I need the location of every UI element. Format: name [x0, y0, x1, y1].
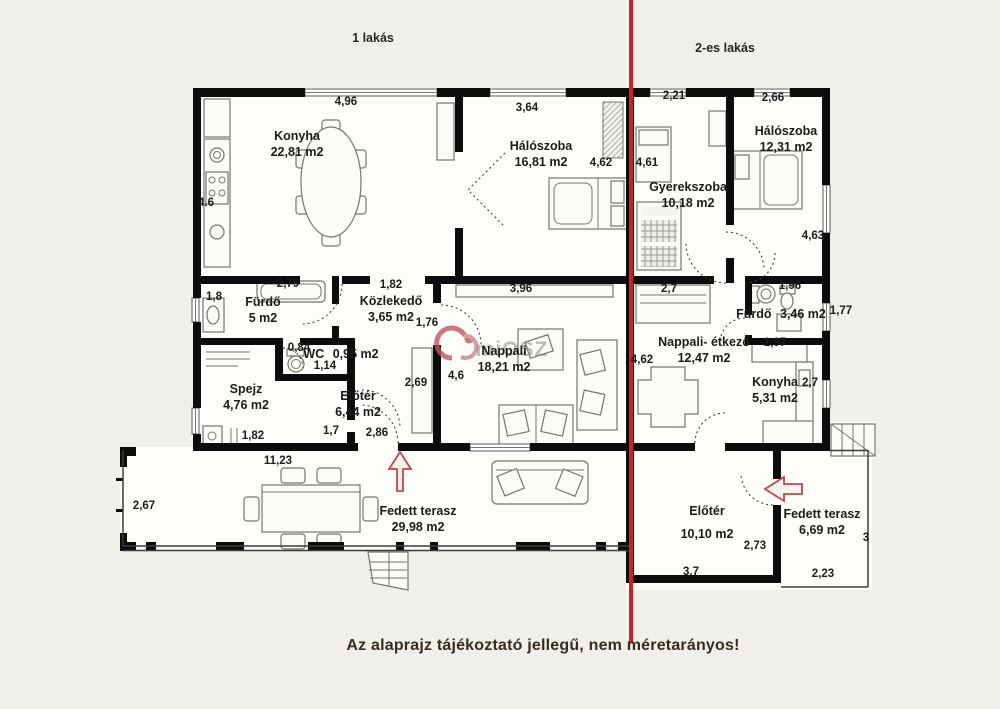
- dimension-label: 4,62: [631, 354, 653, 366]
- disclaimer-text: Az alaprajz tájékoztató jellegű, nem mér…: [346, 637, 739, 655]
- dimension-label: 4.6: [198, 197, 214, 209]
- dimension-label: 3,7: [683, 566, 699, 578]
- room-label-haloszoba-2: Hálószoba 12,31 m2: [755, 123, 818, 156]
- room-label-kozlekedo: Közlekedő 3,65 m2: [360, 293, 423, 326]
- dimension-label: 2,86: [366, 427, 388, 439]
- terrace1-steps: [368, 552, 408, 590]
- apartment-1-title: 1 lakás: [352, 31, 394, 45]
- room-label-nappali-1: Nappali 18,21 m2: [478, 343, 531, 376]
- dimension-label: 3,64: [516, 102, 538, 114]
- dimension-label: 1,82: [242, 430, 264, 442]
- room-label-haloszoba-1: Hálószoba 16,81 m2: [510, 138, 573, 171]
- room-label-gyerekszoba: Gyerekszoba 10,18 m2: [649, 179, 727, 212]
- apartment-divider-line: [629, 0, 633, 643]
- floor-plan-page: 1 lakás 2-es lakás miOSZ Konyha 22,81 m2…: [0, 0, 1000, 709]
- dimension-label: 1,14: [314, 360, 336, 372]
- dimension-label: 1,8: [206, 291, 222, 303]
- room-label-spejz: Spejz 4,76 m2: [223, 381, 269, 414]
- dimension-label: 1,76: [416, 317, 438, 329]
- dimension-label: 3,96: [510, 283, 532, 295]
- room-label-konyha-1: Konyha 22,81 m2: [271, 128, 324, 161]
- dimension-label: 4,96: [335, 96, 357, 108]
- room-label-terasz-1: Fedett terasz 29,98 m2: [379, 503, 456, 536]
- apartment-2-title: 2-es lakás: [695, 41, 755, 55]
- dimension-label: 2,21: [663, 90, 685, 102]
- dimension-label: 1,97: [764, 337, 786, 349]
- dimension-label: 4,61: [636, 157, 658, 169]
- dimension-label: 1,7: [323, 425, 339, 437]
- kitchen1-counter: [204, 99, 230, 267]
- dimension-label: 0,84: [288, 342, 310, 354]
- dimension-label: 1,82: [380, 279, 402, 291]
- room-label-nappali-etkezo: Nappali- étkező 12,47 m2: [658, 334, 750, 367]
- dimension-label: 2,7: [661, 283, 677, 295]
- dimension-label: 2,66: [762, 92, 784, 104]
- dimension-label: 2,23: [812, 568, 834, 580]
- dimension-label: 2,79: [277, 278, 299, 290]
- dimension-label: 2,69: [405, 377, 427, 389]
- dimension-label: 4,6: [448, 370, 464, 382]
- dimension-label: 2,73: [744, 540, 766, 552]
- kitchen1-cabinet: [437, 103, 454, 160]
- room-label-furdo-1: Fürdő 5 m2: [245, 294, 280, 327]
- dimension-label: 2,67: [133, 500, 155, 512]
- dimension-label: 1,77: [830, 305, 852, 317]
- room-label-terasz-2: Fedett terasz 6,69 m2: [783, 506, 860, 539]
- dimension-label: 2,7: [802, 377, 818, 389]
- dimension-label: 4,62: [590, 157, 612, 169]
- dimension-label: 11,23: [264, 455, 292, 467]
- bedroom2-furniture: [732, 151, 802, 209]
- room-label-konyha-2: Konyha 5,31 m2: [752, 374, 798, 407]
- room-label-furdo-2: Fürdő 3,46 m2: [736, 304, 826, 325]
- dimension-label: 3: [863, 532, 869, 544]
- hall1-closet: [412, 348, 432, 433]
- room-label-eloter-2: Előtér 10,10 m2: [681, 500, 734, 545]
- dimension-label: 1,96: [779, 280, 801, 292]
- dimension-label: 4,63: [802, 230, 824, 242]
- room-label-eloter-1: Előtér 6,44 m2: [335, 388, 381, 421]
